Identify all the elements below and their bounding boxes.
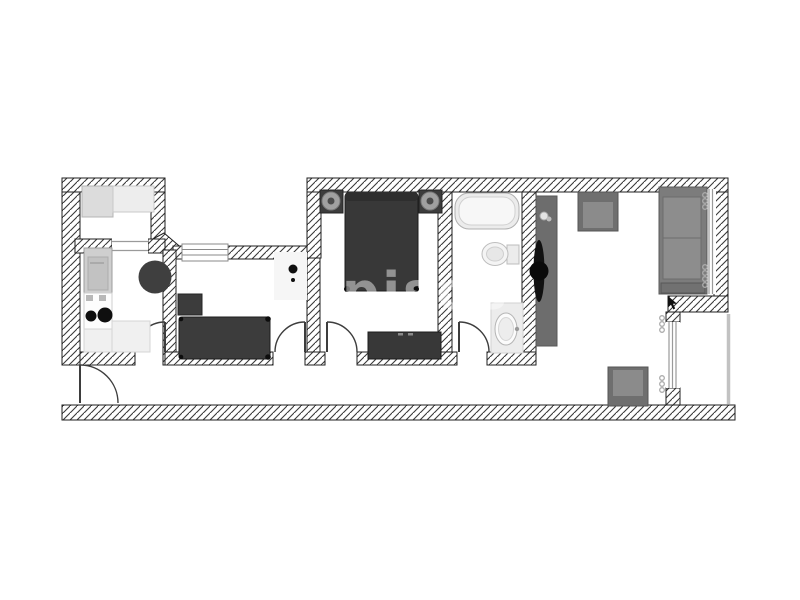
entry-door [80, 365, 118, 403]
dresser [368, 332, 441, 359]
floorplan-drawing: pisos [0, 0, 800, 600]
balcony-window [666, 322, 680, 388]
stove-knob-right [99, 295, 106, 301]
dresser-handle [398, 333, 403, 336]
table-lamp-right-center [427, 198, 434, 205]
armchair-bottom [608, 367, 648, 406]
wall-hallway-seg5 [487, 352, 536, 365]
storage-opening [112, 238, 148, 254]
floor-lamp [289, 265, 298, 274]
bed-post [265, 316, 271, 322]
bathtub-basin [459, 197, 515, 225]
wall-left [62, 178, 80, 365]
double-bedroom-door [327, 322, 357, 352]
kitchen [84, 248, 172, 352]
stove-knob-left [86, 295, 93, 301]
bed-post [265, 354, 271, 360]
armchair-top [578, 192, 618, 231]
dresser-handle [408, 333, 413, 336]
watermark: pisos [342, 262, 510, 322]
table-lamp-left-center [328, 198, 335, 205]
single-bed [179, 317, 270, 359]
bed-post [179, 355, 184, 360]
armchair-bottom-seat [613, 370, 643, 396]
wall-storage-bottom-right [148, 239, 165, 253]
bathroom-door [459, 322, 489, 352]
nightstand [178, 294, 202, 315]
floor-lamp-base [291, 278, 295, 282]
round-dining-table [139, 261, 172, 294]
armchair-top-seat [583, 202, 613, 228]
sofa-cushion-bottom [663, 238, 701, 279]
cabinet-right [113, 186, 154, 212]
decor-object-small [547, 217, 552, 222]
bed-post [179, 317, 184, 322]
floorplan-page: pisos [0, 0, 800, 600]
sofa-armrest [661, 283, 705, 293]
wall-hallway-seg3 [305, 352, 325, 365]
wall-hallway-seg1 [80, 352, 135, 365]
sofa-cushion-top [663, 197, 701, 238]
single-bedroom-door [275, 322, 305, 352]
bedroom-single [178, 252, 307, 360]
cabinet-left [82, 186, 113, 217]
rug [274, 252, 307, 300]
wall-balcony-window-stub-top [666, 312, 680, 322]
wall-balcony-top-stub [668, 296, 728, 312]
toilet-bowl-inner [487, 247, 504, 261]
storage-room [82, 186, 154, 217]
wall-balcony-window-stub-bottom [666, 388, 680, 405]
burner-small [86, 311, 97, 322]
single-bedroom-window [182, 244, 228, 261]
wall-bedrooms-divider [307, 258, 320, 365]
sofa [659, 187, 707, 294]
wall-bottom [62, 405, 735, 420]
stove [84, 293, 113, 329]
counter-bottom [112, 321, 150, 352]
wall-right [714, 192, 728, 312]
sink-tap [515, 327, 519, 331]
counter-left [84, 329, 112, 352]
burner-large [98, 308, 113, 323]
double-bed-headboard [345, 192, 418, 201]
appliance-door [88, 257, 108, 290]
